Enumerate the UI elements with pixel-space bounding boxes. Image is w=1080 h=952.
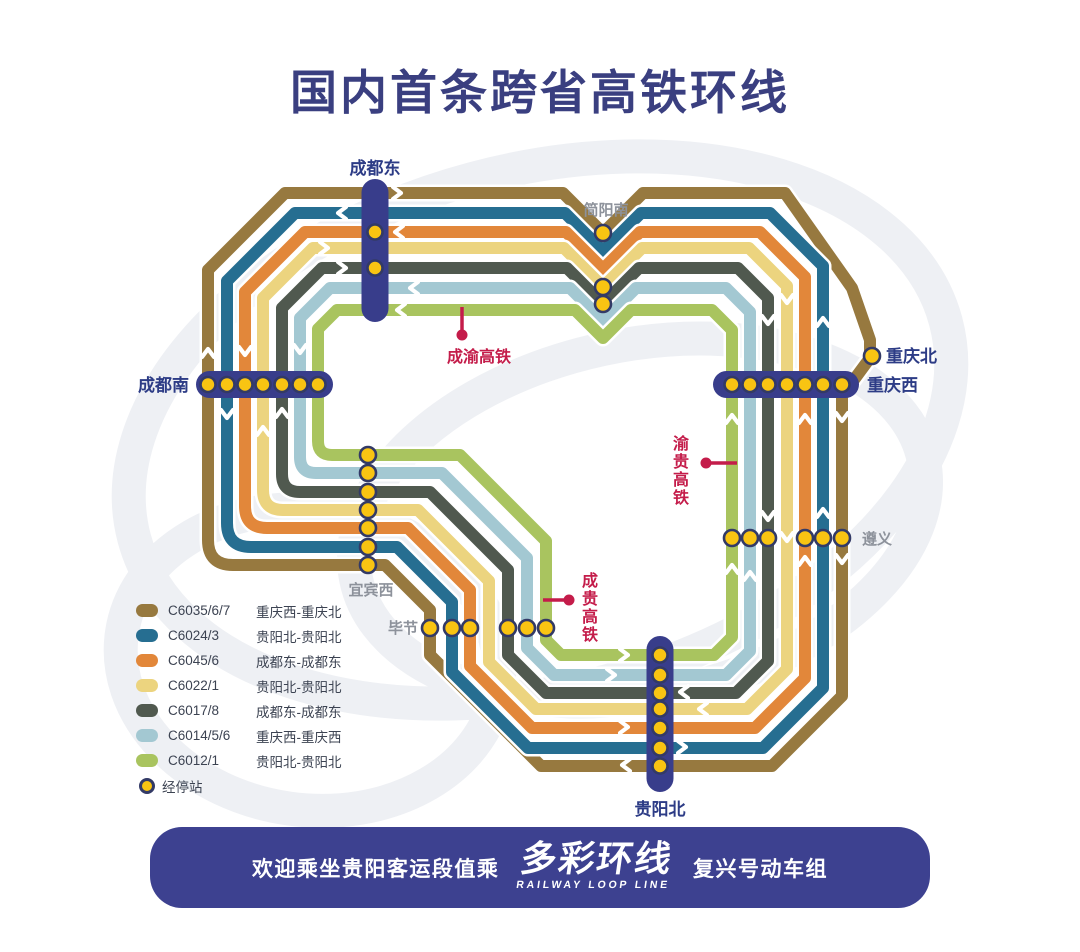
stop-dot xyxy=(798,377,813,392)
legend-item: C6035/6/7 重庆西-重庆北 xyxy=(136,598,342,623)
legend-item: C6024/3 贵阳北-贵阳北 xyxy=(136,623,342,648)
legend-item: C6014/5/6 重庆西-重庆西 xyxy=(136,723,342,748)
legend-stop-label: 经停站 xyxy=(162,776,203,796)
stop-dot xyxy=(538,620,554,636)
stop-dot xyxy=(780,377,795,392)
stop-dot xyxy=(834,530,850,546)
stop-dot xyxy=(360,502,376,518)
station-label-zunyi: 遵义 xyxy=(862,530,892,548)
pointer-dot xyxy=(701,458,712,469)
stop-dot xyxy=(595,225,611,241)
legend-route: 贵阳北-贵阳北 xyxy=(256,626,342,646)
stop-dot xyxy=(360,539,376,555)
pointer-dot xyxy=(564,595,575,606)
stop-dot xyxy=(462,620,478,636)
stop-dot xyxy=(500,620,516,636)
stop-dot xyxy=(653,686,668,701)
poster: 成渝高铁渝贵高铁成贵高铁成都东简阳南重庆北重庆西成都南遵义宜宾西毕节贵阳北 国内… xyxy=(0,0,1080,952)
stop-dot xyxy=(595,296,611,312)
stop-dot xyxy=(201,377,216,392)
banner-trainset-text: 复兴号动车组 xyxy=(693,853,828,883)
page-title: 国内首条跨省高铁环线 xyxy=(0,54,1080,123)
station-chengdunan: 成都南 xyxy=(138,371,333,398)
legend-item: C6045/6 成都东-成都东 xyxy=(136,648,342,673)
legend-item: C6012/1 贵阳北-贵阳北 xyxy=(136,748,342,773)
station-label-chengdunan: 成都南 xyxy=(138,375,189,395)
line-color-swatch xyxy=(136,754,158,767)
stop-dot xyxy=(816,377,831,392)
banner-welcome-text: 欢迎乘坐贵阳客运段值乘 xyxy=(252,853,500,883)
stop-dot xyxy=(444,620,460,636)
legend-route: 成都东-成都东 xyxy=(256,651,342,671)
railway-name-char: 铁 xyxy=(673,488,689,507)
stop-dot xyxy=(311,377,326,392)
stop-dot xyxy=(760,530,776,546)
line-color-swatch xyxy=(136,729,158,742)
stop-dot xyxy=(368,225,383,240)
legend-route: 成都东-成都东 xyxy=(256,701,342,721)
line-color-swatch xyxy=(136,604,158,617)
station-label-jianyangnan: 简阳南 xyxy=(583,201,628,219)
railway-name-char: 成 xyxy=(582,571,598,590)
stop-dot xyxy=(360,447,376,463)
station-capsule xyxy=(362,179,389,322)
stop-dot xyxy=(220,377,235,392)
station-label-chengdudong: 成都东 xyxy=(350,158,401,178)
stop-dot xyxy=(835,377,850,392)
legend-item: C6017/8 成都东-成都东 xyxy=(136,698,342,723)
banner-brand-en: RAILWAY LOOP LINE xyxy=(516,879,671,891)
stop-dot xyxy=(724,530,740,546)
railway-name-char: 渝 xyxy=(673,434,690,453)
station-label-chongqingxi: 重庆西 xyxy=(867,375,918,395)
railway-name: 成渝高铁 xyxy=(447,347,511,366)
stop-dot xyxy=(653,702,668,717)
railway-name-char: 高 xyxy=(582,607,598,626)
legend-train-code: C6014/5/6 xyxy=(168,728,246,743)
legend-route: 重庆西-重庆北 xyxy=(256,601,342,621)
legend-train-code: C6022/1 xyxy=(168,678,246,693)
station-zunyi: 遵义 xyxy=(724,530,892,548)
legend-item: C6022/1 贵阳北-贵阳北 xyxy=(136,673,342,698)
pointer-dot xyxy=(457,330,468,341)
legend-train-code: C6035/6/7 xyxy=(168,603,246,618)
stop-dot xyxy=(238,377,253,392)
stop-dot xyxy=(422,620,438,636)
station-label-guiyangbei: 贵阳北 xyxy=(635,799,686,819)
legend-route: 重庆西-重庆西 xyxy=(256,726,342,746)
legend-route: 贵阳北-贵阳北 xyxy=(256,751,342,771)
line-color-swatch xyxy=(136,679,158,692)
stop-dot xyxy=(275,377,290,392)
legend-train-code: C6024/3 xyxy=(168,628,246,643)
railway-name-char: 铁 xyxy=(582,625,598,644)
stop-dot xyxy=(653,741,668,756)
stop-dot xyxy=(725,377,740,392)
station-chongqingbei: 重庆北 xyxy=(864,346,937,366)
station-chongqingxi: 重庆西 xyxy=(713,371,918,398)
stop-dot xyxy=(653,648,668,663)
stop-dot xyxy=(360,484,376,500)
railway-name-char: 贵 xyxy=(673,452,689,471)
line-color-swatch xyxy=(136,704,158,717)
legend-item-stop: 经停站 xyxy=(136,773,342,798)
stop-dot xyxy=(815,530,831,546)
line-color-swatch xyxy=(136,654,158,667)
stop-dot xyxy=(360,520,376,536)
station-bijie: 毕节 xyxy=(388,619,554,637)
legend-route: 贵阳北-贵阳北 xyxy=(256,676,342,696)
line-color-swatch xyxy=(136,629,158,642)
stop-dot xyxy=(797,530,813,546)
railway-name-char: 高 xyxy=(673,470,689,489)
stop-dot xyxy=(360,465,376,481)
banner-brand: 多彩环线 RAILWAY LOOP LINE xyxy=(516,841,677,891)
banner-brand-cn: 多彩环线 xyxy=(518,841,677,877)
stop-dot xyxy=(742,530,758,546)
stop-dot xyxy=(519,620,535,636)
stop-dot xyxy=(368,261,383,276)
stop-dot xyxy=(256,377,271,392)
stop-station-icon xyxy=(139,778,155,794)
legend-train-code: C6012/1 xyxy=(168,753,246,768)
stop-dot xyxy=(653,721,668,736)
stop-dot xyxy=(360,557,376,573)
legend-train-code: C6045/6 xyxy=(168,653,246,668)
legend: C6035/6/7 重庆西-重庆北 C6024/3 贵阳北-贵阳北 C6045/… xyxy=(136,598,342,798)
stop-dot xyxy=(864,348,880,364)
legend-train-code: C6017/8 xyxy=(168,703,246,718)
station-label-bijie: 毕节 xyxy=(388,619,418,637)
stop-dot xyxy=(293,377,308,392)
stop-dot xyxy=(653,668,668,683)
bottom-banner: 欢迎乘坐贵阳客运段值乘 多彩环线 RAILWAY LOOP LINE 复兴号动车… xyxy=(150,827,930,908)
station-label-chongqingbei: 重庆北 xyxy=(886,346,937,366)
loop-map: 成渝高铁渝贵高铁成贵高铁成都东简阳南重庆北重庆西成都南遵义宜宾西毕节贵阳北 xyxy=(0,0,1080,952)
stop-dot xyxy=(743,377,758,392)
stop-dot xyxy=(761,377,776,392)
stop-dot xyxy=(595,279,611,295)
railway-name-char: 贵 xyxy=(582,589,598,608)
station-label-yibinxi: 宜宾西 xyxy=(348,581,393,599)
stop-dot xyxy=(653,759,668,774)
